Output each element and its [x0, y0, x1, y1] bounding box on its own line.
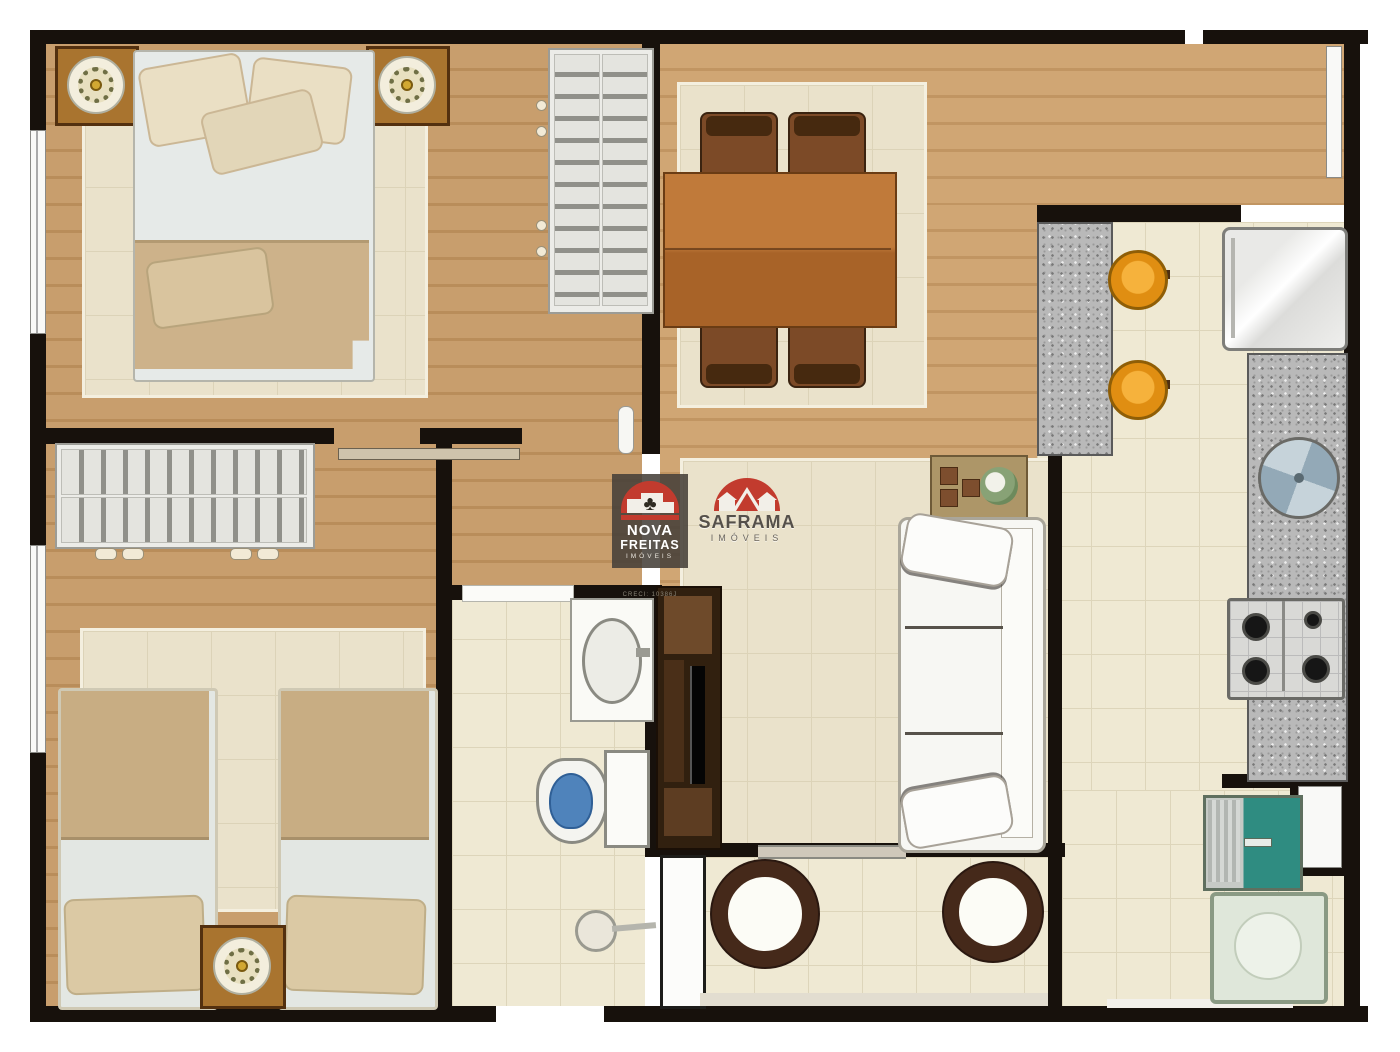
watermark-name-line2: FREITAS [612, 538, 688, 552]
balcony-door-leaf [660, 855, 706, 1009]
bar-stool [1108, 360, 1168, 420]
sofa-arm-pillow [899, 773, 1016, 851]
round-table-right-icon [944, 863, 1042, 961]
watermark-saframa: SAFRAMA IMÓVEIS [682, 478, 812, 543]
wardrobe-knob [536, 220, 547, 231]
decor-cup [940, 467, 958, 485]
burner-small [1304, 611, 1322, 629]
lamp-left-icon [67, 56, 125, 114]
wall-top-gap [1185, 30, 1203, 44]
pillow [283, 895, 426, 996]
dining-chair [700, 112, 778, 180]
wardrobe-knob [536, 126, 547, 137]
vanity-basin-icon [582, 618, 642, 704]
vanity [570, 598, 654, 722]
burner [1302, 655, 1330, 683]
lamp-twin-icon [213, 937, 271, 995]
tv-icon [690, 666, 705, 784]
bar-stool [1108, 250, 1168, 310]
logo-building [660, 502, 674, 513]
stove-four-burners [1227, 598, 1345, 700]
chair-back [794, 364, 860, 384]
window-kitchen-right [1326, 46, 1342, 178]
logo-red-bar [621, 515, 679, 520]
breakfast-bar [1037, 222, 1113, 456]
hanger-column [602, 54, 648, 306]
laundry-window [1298, 786, 1342, 868]
bed-blanket [61, 691, 209, 840]
chair-back [706, 116, 772, 136]
toilet [536, 758, 608, 844]
wall-living-kitchen [1048, 452, 1062, 1006]
balcony-edge-strip [700, 993, 1048, 1006]
toilet-tank [604, 750, 650, 848]
kitchen-counter [1247, 353, 1348, 782]
tv-panel [656, 586, 722, 850]
sofa-seam [905, 732, 1003, 735]
sofa-arm-pillow [899, 511, 1016, 589]
wall-top [30, 30, 1368, 44]
washing-machine [1210, 892, 1328, 1004]
wardrobe-handle [230, 548, 252, 560]
chair-back [794, 116, 860, 136]
watermark-saframa-subtitle: IMÓVEIS [682, 533, 812, 543]
balcony-sliding-door [758, 845, 906, 859]
wardrobe-handle [122, 548, 144, 560]
wardrobe-handle [95, 548, 117, 560]
hanger-column [554, 54, 600, 306]
refrigerator [1222, 227, 1348, 351]
dining-chair [788, 320, 866, 388]
lamp-right-icon [378, 56, 436, 114]
laundry-tub [1203, 795, 1303, 891]
tub-faucet [1244, 838, 1272, 847]
wardrobe-knob [536, 246, 547, 257]
nova-freitas-logo-icon: ♣ [621, 481, 679, 513]
bed-blanket [281, 691, 429, 840]
wardrobe-knob [536, 100, 547, 111]
table-seam [665, 248, 891, 250]
sofa [898, 517, 1046, 853]
chair-back [706, 364, 772, 384]
window-bedroom-double [30, 130, 46, 334]
shower-head-icon [575, 910, 617, 952]
wardrobe-handle [257, 548, 279, 560]
wardrobe-hanger-rack-horizontal [55, 443, 315, 549]
side-table [930, 455, 1028, 521]
round-sink-icon [1258, 437, 1340, 519]
bathroom-door-opening [462, 585, 574, 602]
bedroom-twin-door-leaf [338, 448, 520, 460]
watermark-subtitle: IMÓVEIS [612, 552, 688, 562]
pillow [63, 895, 206, 996]
logo-roof-inner [736, 493, 758, 511]
fridge-handle [1231, 238, 1235, 338]
burner [1242, 613, 1270, 641]
watermark-nova-freitas: ♣ NOVA FREITAS IMÓVEIS [612, 474, 688, 568]
tub-drainboard [1208, 800, 1240, 882]
tv-shelf [664, 596, 712, 654]
sofa-seam [905, 626, 1003, 629]
wall-bedrooms-a [46, 428, 334, 444]
wall-bedrooms-b [420, 428, 522, 444]
bathroom-bottom-opening [496, 1006, 604, 1022]
hanger-row [61, 449, 307, 495]
toilet-bowl-water [549, 773, 593, 829]
washer-drum-icon [1234, 912, 1302, 980]
sink-drain [1294, 473, 1304, 483]
bedroom-twin-door-opening [334, 428, 420, 444]
wardrobe-hanger-rack-vertical [548, 48, 654, 314]
floor-plan: ♣ NOVA FREITAS IMÓVEIS CRECI: 10386J SAF… [0, 0, 1400, 1052]
round-table-left-icon [712, 861, 818, 967]
saframa-logo-icon [714, 478, 780, 511]
decor-cup [962, 479, 980, 497]
watermark-saframa-name: SAFRAMA [682, 511, 812, 533]
decor-cup [940, 489, 958, 507]
window-bedroom-twin [30, 545, 46, 753]
single-bed-left [58, 688, 218, 1010]
door-jamb-marker [618, 406, 634, 454]
burner [1242, 657, 1270, 685]
logo-tree-icon: ♣ [643, 493, 656, 513]
dining-chair [788, 112, 866, 180]
watermark-creci: CRECI: 10386J [608, 592, 692, 598]
double-bed [133, 50, 375, 382]
decor-plant-icon [980, 467, 1018, 505]
dining-chair [700, 320, 778, 388]
watermark-name-line1: NOVA [612, 523, 688, 538]
wall-kitchen-top [1037, 205, 1241, 222]
tv-shelf [664, 660, 684, 782]
dining-table [663, 172, 897, 328]
vanity-faucet [636, 648, 650, 657]
single-bed-right [278, 688, 438, 1010]
tv-shelf [664, 788, 712, 836]
wall-bedroom-bathroom [436, 444, 452, 1006]
hanger-row [61, 497, 307, 543]
stove-divider [1282, 601, 1285, 691]
